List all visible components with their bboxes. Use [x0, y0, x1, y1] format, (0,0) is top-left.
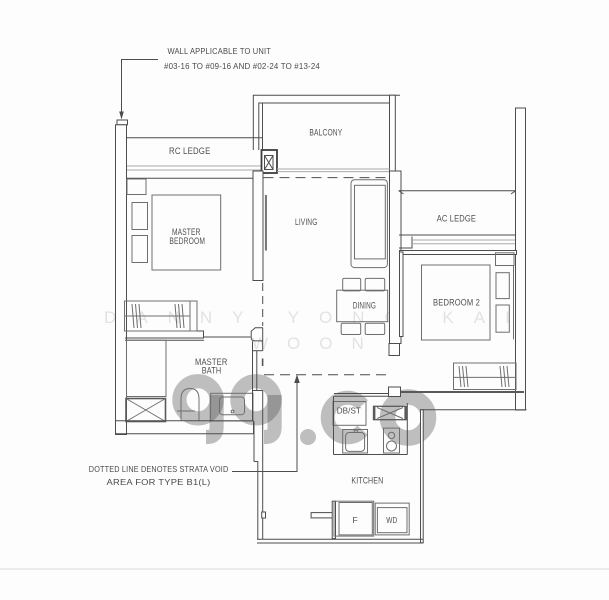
- svg-text:DB/ST: DB/ST: [337, 406, 361, 416]
- svg-text:DANNY YONG KAI: DANNY YONG KAI: [104, 308, 530, 327]
- svg-text:F: F: [353, 515, 358, 525]
- svg-text:#03-16 TO #09-16 AND #02-24 TO: #03-16 TO #09-16 AND #02-24 TO #13-24: [164, 61, 320, 71]
- svg-text:DOTTED LINE DENOTES STRATA VOI: DOTTED LINE DENOTES STRATA VOID: [89, 464, 229, 474]
- svg-text:AREA FOR TYPE B1(L): AREA FOR TYPE B1(L): [107, 477, 211, 487]
- svg-text:KITCHEN: KITCHEN: [351, 476, 383, 486]
- svg-text:DINING: DINING: [353, 301, 376, 311]
- svg-text:WOON: WOON: [252, 334, 383, 353]
- svg-text:BEDROOM: BEDROOM: [169, 236, 205, 246]
- svg-text:WALL APPLICABLE TO UNIT: WALL APPLICABLE TO UNIT: [168, 46, 272, 56]
- svg-text:RC LEDGE: RC LEDGE: [169, 146, 211, 156]
- svg-text:BATH: BATH: [202, 366, 222, 376]
- svg-text:BEDROOM 2: BEDROOM 2: [433, 298, 480, 308]
- svg-text:WD: WD: [386, 515, 397, 525]
- svg-text:BALCONY: BALCONY: [309, 128, 342, 138]
- svg-text:LIVING: LIVING: [295, 217, 318, 227]
- svg-text:AC LEDGE: AC LEDGE: [437, 214, 476, 224]
